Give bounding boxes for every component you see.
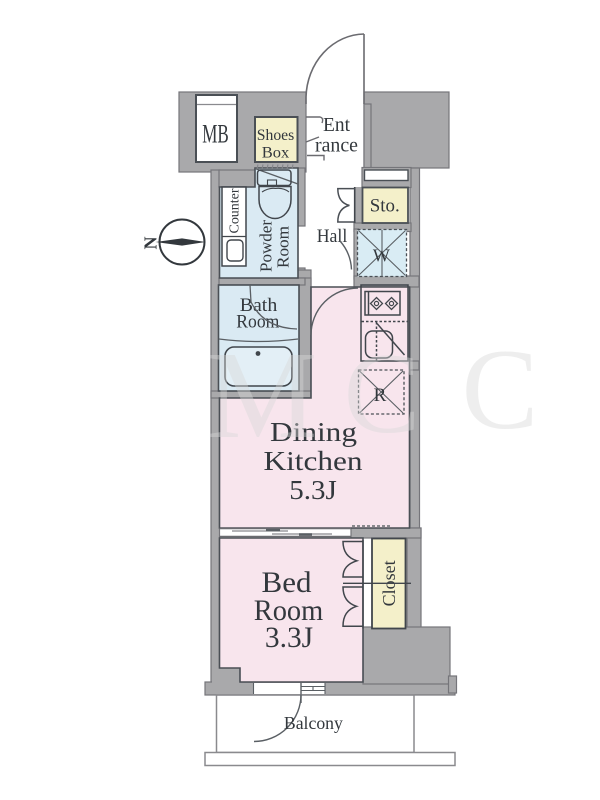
svg-text:W: W bbox=[373, 246, 390, 266]
svg-text:3.3J: 3.3J bbox=[265, 621, 314, 654]
svg-text:Counter: Counter bbox=[227, 188, 242, 234]
svg-text:Balcony: Balcony bbox=[284, 713, 343, 733]
svg-text:MB: MB bbox=[202, 120, 229, 149]
svg-text:M: M bbox=[206, 327, 317, 465]
svg-text:Sto.: Sto. bbox=[370, 196, 400, 217]
svg-text:5.3J: 5.3J bbox=[289, 475, 337, 505]
svg-text:rance: rance bbox=[315, 136, 358, 157]
svg-text:C: C bbox=[462, 326, 539, 453]
svg-text:Room: Room bbox=[274, 226, 293, 268]
svg-text:Ent: Ent bbox=[323, 115, 351, 136]
svg-text:Box: Box bbox=[262, 145, 290, 162]
svg-text:N: N bbox=[141, 237, 161, 250]
svg-text:Shoes: Shoes bbox=[257, 127, 295, 144]
svg-text:C: C bbox=[344, 330, 421, 457]
